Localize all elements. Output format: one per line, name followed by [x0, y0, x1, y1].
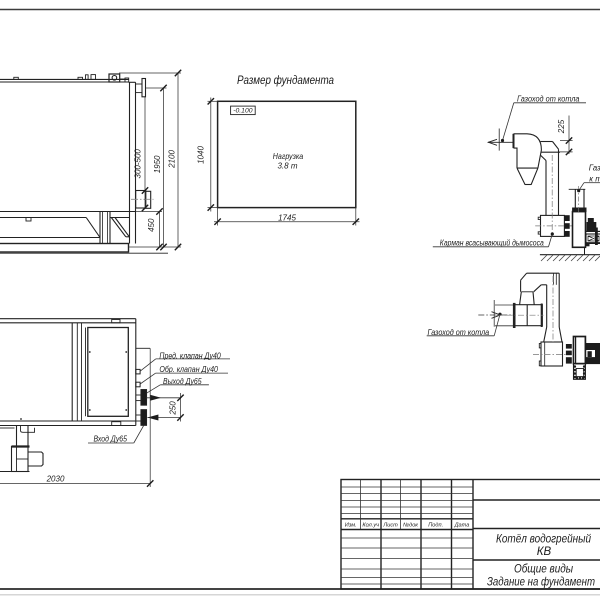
- svg-text:Общие виды: Общие виды: [514, 564, 573, 576]
- svg-text:1040: 1040: [197, 146, 206, 164]
- svg-text:Лист: Лист: [382, 523, 398, 529]
- svg-text:КВ: КВ: [537, 546, 552, 558]
- svg-text:300-500: 300-500: [134, 149, 143, 179]
- svg-text:1745: 1745: [278, 214, 296, 223]
- svg-text:3.8 т: 3.8 т: [277, 161, 297, 170]
- svg-text:Газ: Газ: [589, 164, 600, 173]
- svg-text:№док: №док: [403, 523, 418, 529]
- svg-text:-0.100: -0.100: [233, 108, 252, 115]
- svg-text:Дата: Дата: [454, 523, 470, 529]
- svg-text:Газоход от котла: Газоход от котла: [517, 95, 580, 104]
- svg-text:Задание на фундамент: Задание на фундамент: [487, 577, 595, 589]
- svg-text:2030: 2030: [46, 475, 65, 484]
- svg-text:Кол.уч: Кол.уч: [362, 523, 379, 529]
- svg-text:Нагрузка: Нагрузка: [273, 152, 304, 161]
- svg-text:Карман всасывающий дымососа: Карман всасывающий дымососа: [440, 238, 544, 247]
- svg-text:Размер фундамента: Размер фундамента: [237, 75, 334, 87]
- svg-text:450: 450: [147, 218, 156, 232]
- svg-text:1950: 1950: [153, 155, 162, 173]
- svg-text:250: 250: [168, 401, 177, 416]
- svg-text:Подп.: Подп.: [428, 523, 443, 529]
- svg-text:к т: к т: [589, 174, 600, 183]
- svg-text:2100: 2100: [167, 150, 176, 169]
- svg-text:Вход Ду65: Вход Ду65: [94, 435, 128, 444]
- svg-text:Изм.: Изм.: [345, 523, 357, 529]
- svg-text:225: 225: [557, 119, 566, 134]
- svg-text:Котёл водогрейный: Котёл водогрейный: [496, 534, 592, 546]
